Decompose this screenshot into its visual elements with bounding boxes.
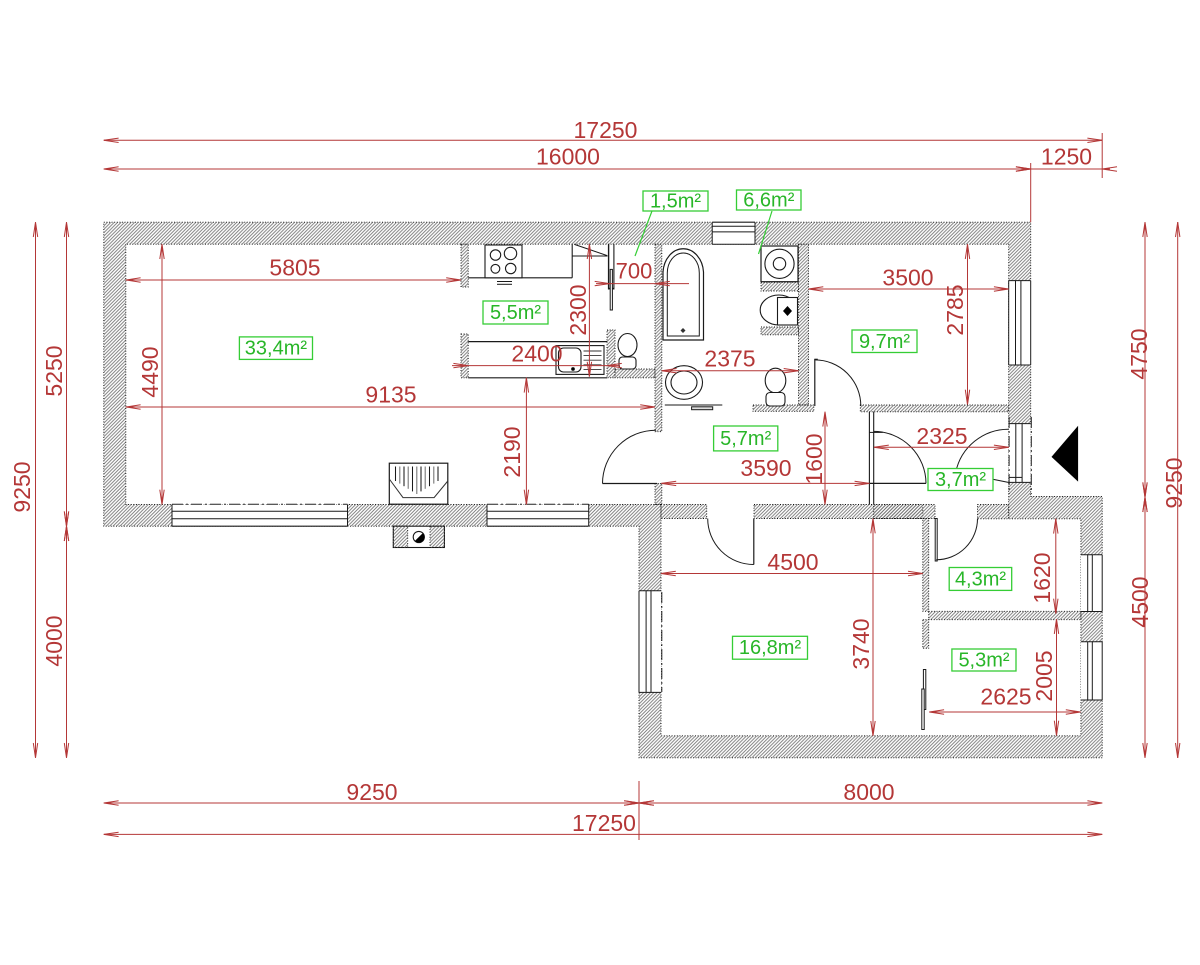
svg-text:33,4m²: 33,4m² xyxy=(245,338,308,360)
svg-text:5,3m²: 5,3m² xyxy=(958,650,1009,672)
svg-text:2375: 2375 xyxy=(704,346,755,372)
svg-text:4500: 4500 xyxy=(767,549,818,575)
svg-text:5,7m²: 5,7m² xyxy=(720,428,771,450)
svg-text:2005: 2005 xyxy=(1031,650,1057,701)
svg-text:5,5m²: 5,5m² xyxy=(490,302,541,324)
svg-text:1250: 1250 xyxy=(1041,144,1092,170)
svg-text:9135: 9135 xyxy=(365,382,416,408)
svg-text:2400: 2400 xyxy=(511,341,562,367)
svg-text:4,3m²: 4,3m² xyxy=(955,569,1006,591)
svg-text:9250: 9250 xyxy=(1161,457,1187,508)
svg-text:5250: 5250 xyxy=(41,345,67,396)
svg-text:17250: 17250 xyxy=(574,117,638,143)
svg-text:16000: 16000 xyxy=(536,144,600,170)
svg-text:2300: 2300 xyxy=(565,284,591,335)
svg-text:17250: 17250 xyxy=(572,810,636,836)
svg-text:1620: 1620 xyxy=(1029,552,1055,603)
svg-text:3,7m²: 3,7m² xyxy=(935,469,986,491)
svg-text:4750: 4750 xyxy=(1126,328,1152,379)
svg-text:5805: 5805 xyxy=(269,255,320,281)
svg-text:4490: 4490 xyxy=(137,346,163,397)
svg-text:9250: 9250 xyxy=(9,461,35,512)
svg-text:4000: 4000 xyxy=(41,615,67,666)
svg-text:1,5m²: 1,5m² xyxy=(650,191,701,213)
svg-text:9,7m²: 9,7m² xyxy=(859,331,910,353)
svg-text:2325: 2325 xyxy=(916,423,967,449)
svg-text:3740: 3740 xyxy=(848,618,874,669)
svg-text:8000: 8000 xyxy=(843,779,894,805)
svg-text:700: 700 xyxy=(616,259,653,284)
svg-text:4500: 4500 xyxy=(1127,576,1153,627)
svg-text:3590: 3590 xyxy=(740,455,791,481)
svg-text:3500: 3500 xyxy=(882,265,933,291)
svg-text:6,6m²: 6,6m² xyxy=(743,190,794,212)
svg-text:1600: 1600 xyxy=(801,433,827,484)
svg-text:2785: 2785 xyxy=(942,284,968,335)
svg-text:2625: 2625 xyxy=(980,684,1031,710)
svg-text:9250: 9250 xyxy=(346,779,397,805)
svg-text:16,8m²: 16,8m² xyxy=(739,637,802,659)
svg-text:2190: 2190 xyxy=(499,426,525,477)
